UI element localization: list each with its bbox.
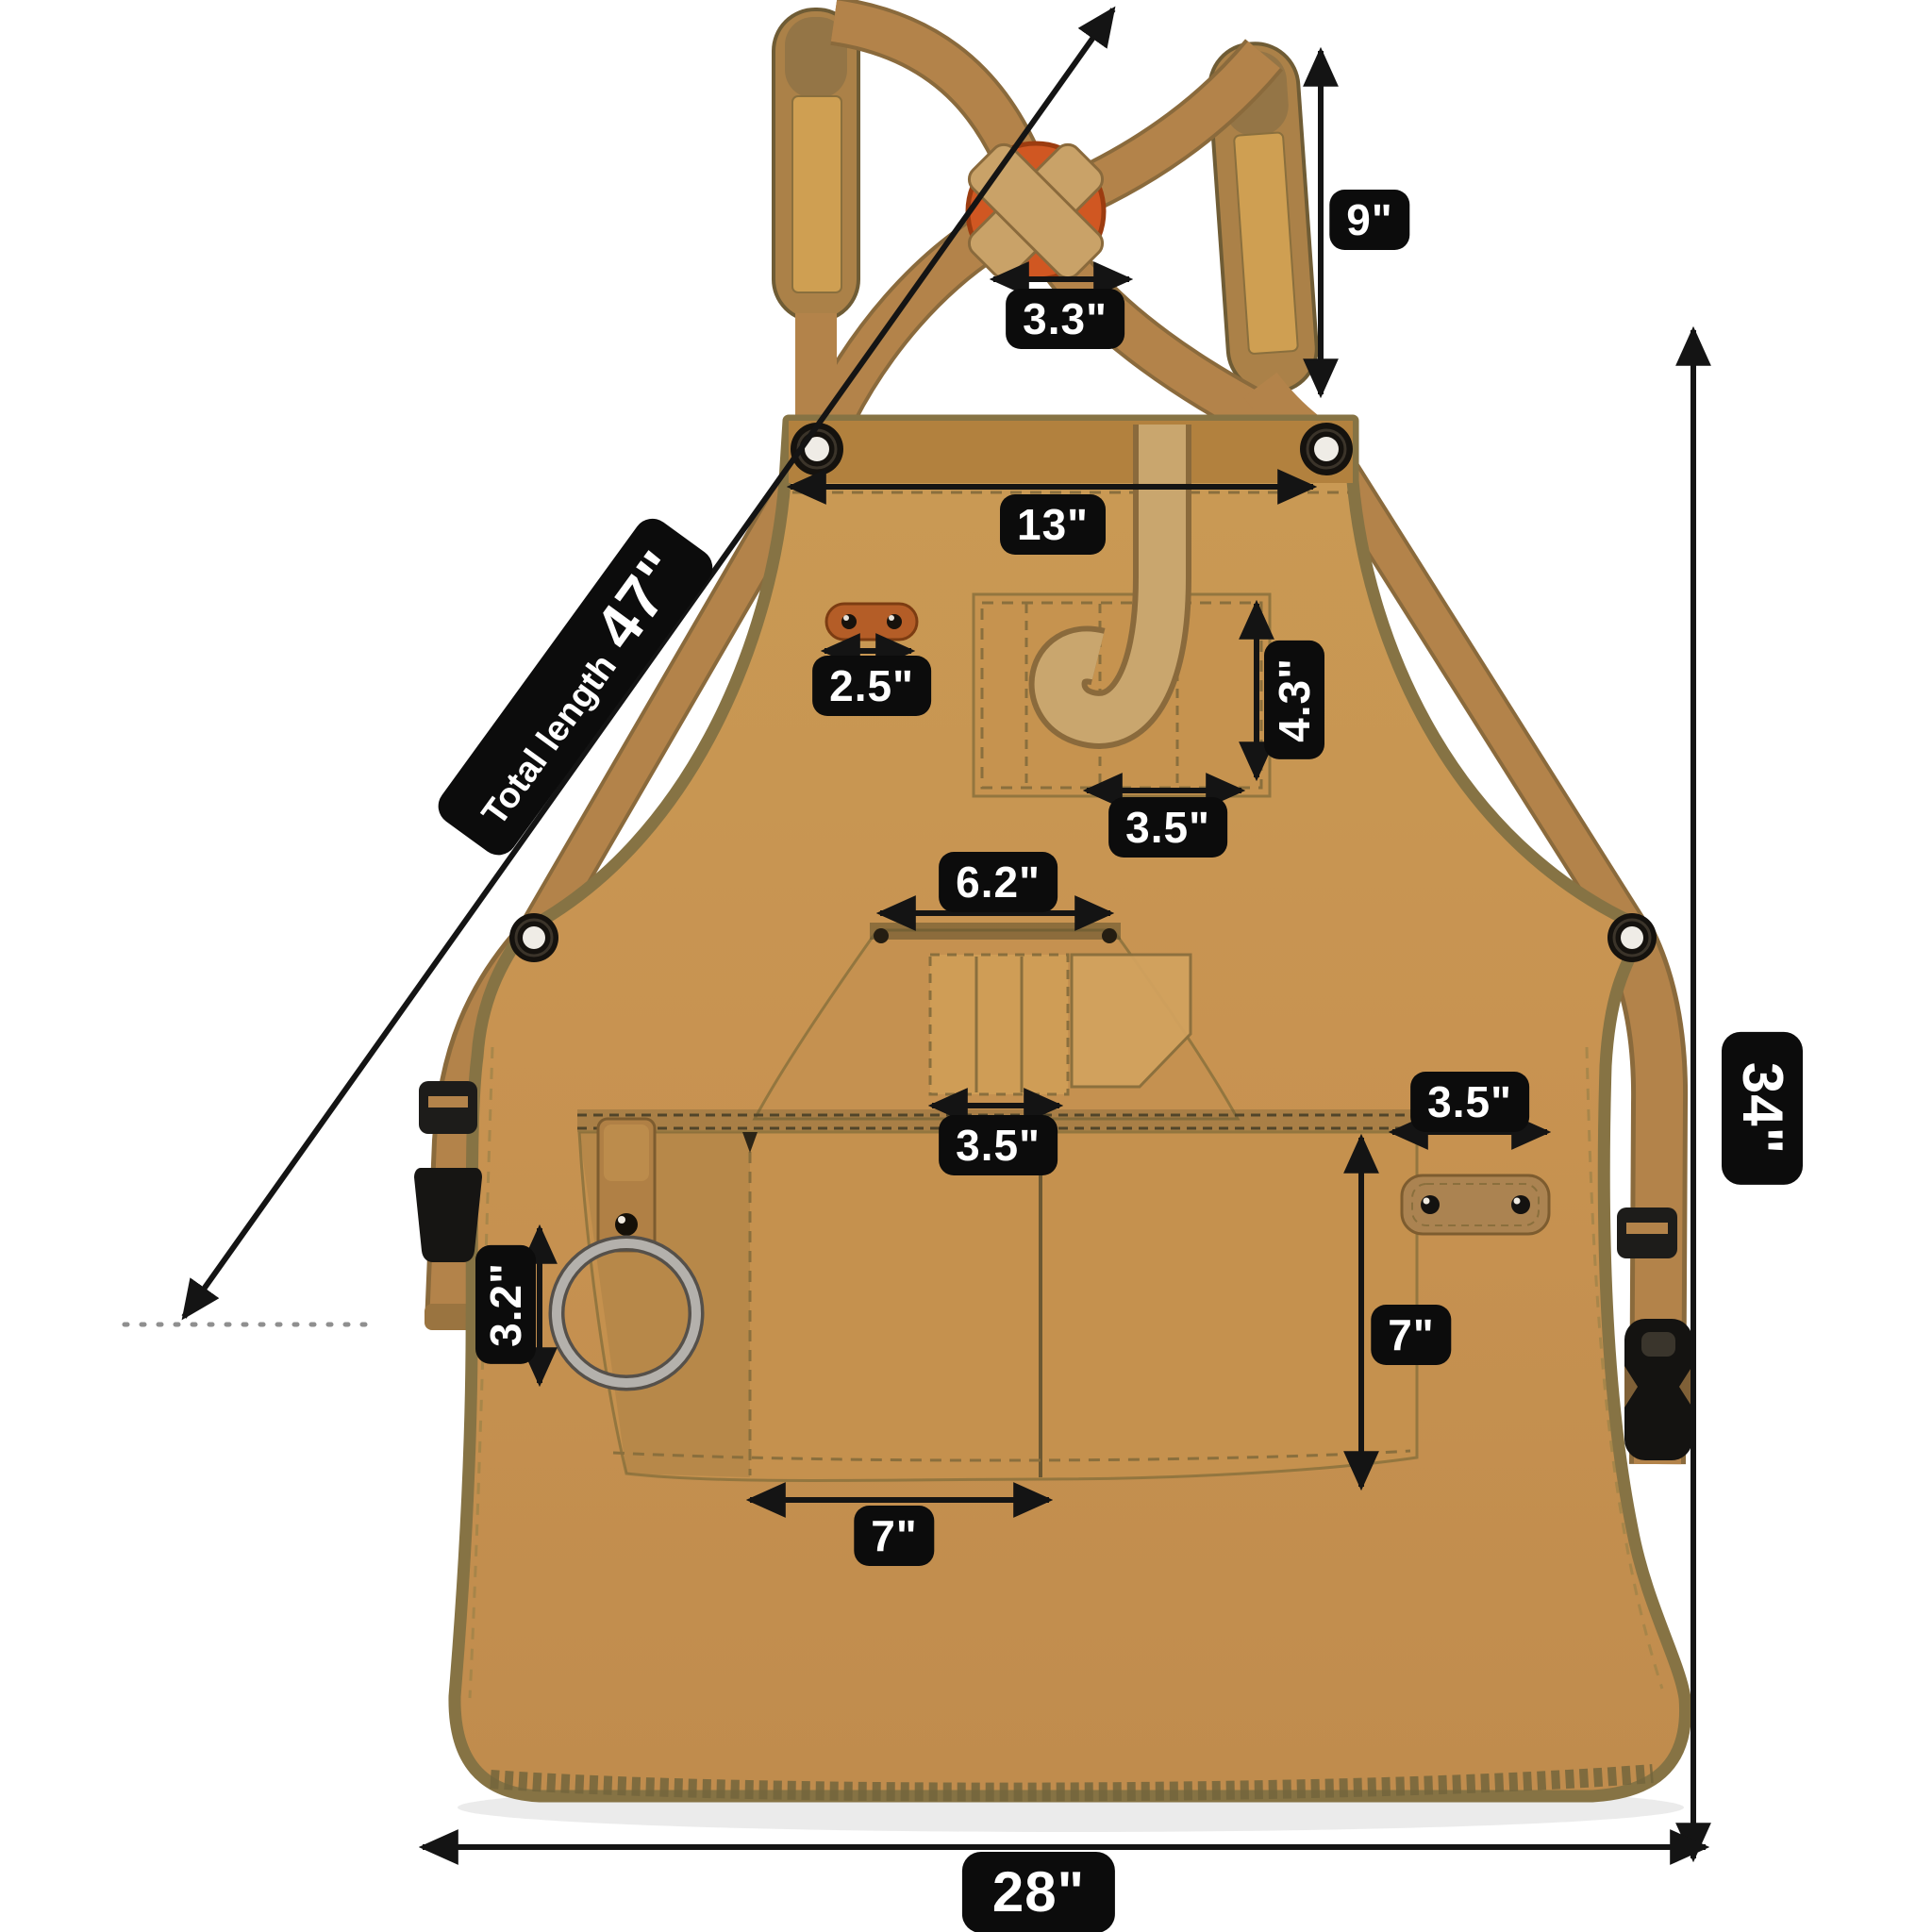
dim-label-ring-height: 3.2" (475, 1245, 536, 1364)
dim-label-middle-pocket: 6.2" (939, 852, 1058, 912)
chest-patch (826, 604, 917, 640)
buckle-left (414, 1081, 482, 1262)
apron-size-diagram: 9" 3.3" 13" Total length 47" 2.5" 4.3" 3… (0, 0, 1932, 1932)
dim-label-strap-pad: 9" (1329, 190, 1409, 250)
dim-label-pocket-depth: 7" (1371, 1305, 1451, 1365)
dim-label-apron-length: 34" (1722, 1032, 1803, 1185)
dim-label-pen-slot: 3.5" (939, 1115, 1058, 1175)
dim-label-apron-width: 28" (962, 1852, 1115, 1932)
shoulder-pad-left (774, 9, 858, 321)
strap-button (964, 140, 1108, 284)
dim-label-chest-pocket-width: 3.5" (1108, 797, 1227, 858)
grommet (1607, 913, 1657, 962)
dim-label-chest-pocket-height: 4.3" (1264, 641, 1324, 759)
grommet (1300, 423, 1353, 475)
dim-label-cross-width: 3.3" (1006, 289, 1124, 349)
side-patch (1402, 1175, 1549, 1234)
apron-illustration (0, 0, 1932, 1932)
dim-label-side-patch: 3.5" (1410, 1072, 1529, 1132)
dim-label-bib-width: 13" (1000, 494, 1106, 555)
dim-label-pocket-width: 7" (854, 1506, 934, 1566)
dim-label-chest-patch: 2.5" (812, 656, 931, 716)
grommet (509, 913, 558, 962)
